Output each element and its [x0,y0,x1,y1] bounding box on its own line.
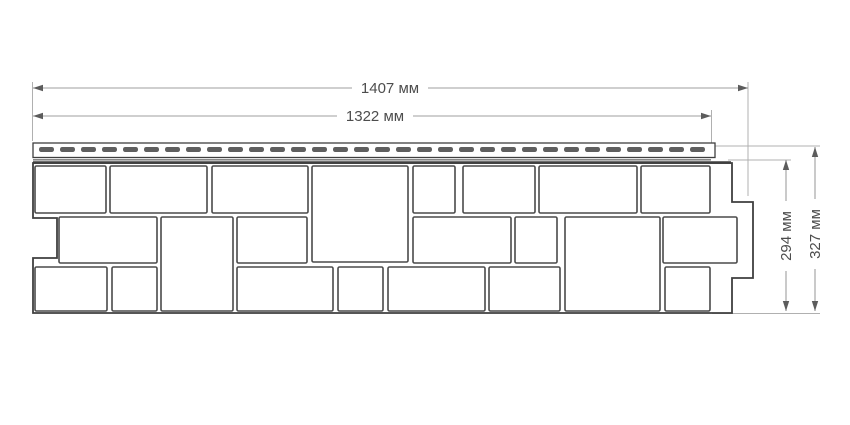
stone-block [35,166,106,213]
arrowhead-up-icon [783,160,789,170]
dim-label-height-outer: 327 мм [807,209,824,259]
nail-slot [354,147,369,152]
arrowhead-right-icon [738,85,748,91]
nail-slot [270,147,285,152]
stone-block [388,267,485,311]
stone-block [665,267,710,311]
stone-block [212,166,308,213]
stone-block [565,217,660,311]
nail-slot [606,147,621,152]
nail-slot [627,147,642,152]
stone-block [161,217,233,311]
nail-slot [543,147,558,152]
nail-slot [417,147,432,152]
arrowhead-up-icon [812,147,818,157]
stone-block [35,267,107,311]
stone-block [59,217,157,263]
nail-slot [186,147,201,152]
stone-block [515,217,557,263]
stone-block [413,217,511,263]
nail-slot [564,147,579,152]
nail-slot [102,147,117,152]
panel-body [33,143,753,313]
arrowhead-down-icon [783,301,789,311]
nail-slot [480,147,495,152]
stone-block [489,267,560,311]
stone-block [641,166,710,213]
stone-block [413,166,455,213]
arrowhead-right-icon [701,113,711,119]
nail-slot [690,147,705,152]
nail-slot [144,147,159,152]
nail-slot [123,147,138,152]
nail-slot [648,147,663,152]
nail-slot [333,147,348,152]
nail-slot [669,147,684,152]
dim-label-width-inner: 1322 мм [346,108,404,125]
nail-slot [165,147,180,152]
arrowhead-left-icon [33,113,43,119]
nail-slot [249,147,264,152]
panel-drawing-svg: 1407 мм 1322 мм 294 мм [0,0,850,425]
arrowhead-left-icon [33,85,43,91]
nail-slot [291,147,306,152]
stone-block [463,166,535,213]
stone-block [312,166,408,262]
nail-slot [438,147,453,152]
dim-label-height-inner: 294 мм [778,211,795,261]
dimension-width-inner: 1322 мм [33,108,711,125]
stone-block [338,267,383,311]
stone-block [110,166,207,213]
nail-slot [207,147,222,152]
nail-slot [39,147,54,152]
dimension-width-outer: 1407 мм [33,80,748,97]
arrowhead-down-icon [812,301,818,311]
stone-block [237,267,333,311]
nail-slot [228,147,243,152]
dimension-height-outer: 327 мм [807,147,824,311]
nail-slot [522,147,537,152]
stone-block [539,166,637,213]
dim-label-width-outer: 1407 мм [361,80,419,97]
nail-slot [81,147,96,152]
dimension-height-inner: 294 мм [778,160,795,311]
nail-slot [501,147,516,152]
stone-block [237,217,307,263]
stone-block [663,217,737,263]
nail-slot [60,147,75,152]
nail-slot [396,147,411,152]
stone-block [112,267,157,311]
nail-slot [585,147,600,152]
nail-slot [459,147,474,152]
siding-panel-diagram: 1407 мм 1322 мм 294 мм [0,0,850,425]
nail-slot [312,147,327,152]
nail-slot [375,147,390,152]
